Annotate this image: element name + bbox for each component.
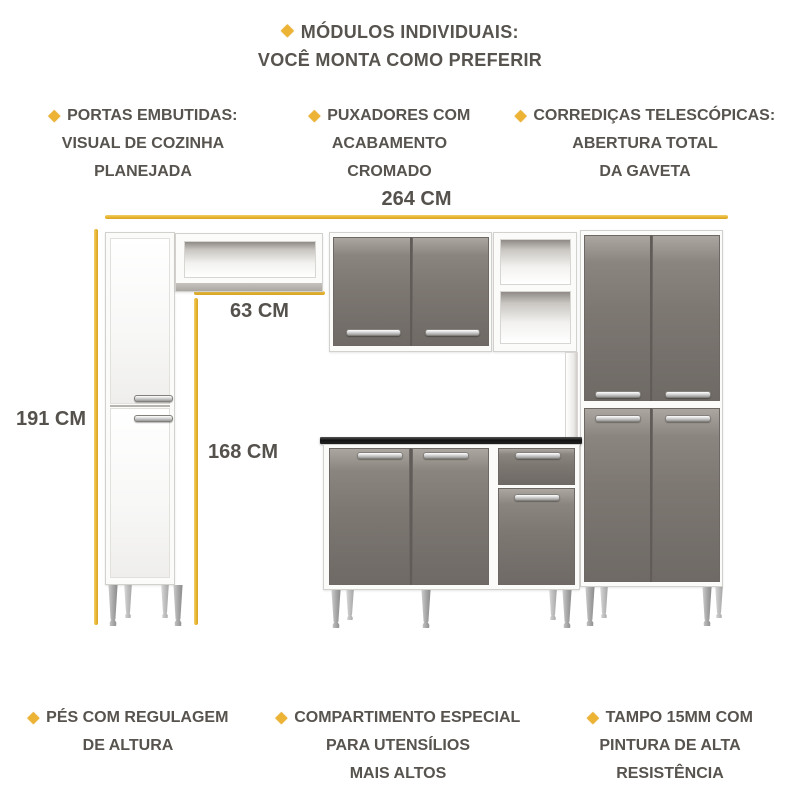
base-cabinet-drawer-handle: [515, 452, 561, 459]
dimension-label-niche-width: 63 CM: [194, 300, 325, 323]
base-cabinet-leg-front-middle: [420, 590, 432, 628]
feature-corredicas-telescopicas: ◆ CORREDIÇAS TELESCÓPICAS: ABERTURA TOTA…: [498, 102, 792, 186]
pantry-leg-back-left: [123, 585, 133, 618]
open-shelf-bottom-compartment: [500, 291, 571, 344]
feature-line: MAIS ALTOS: [256, 760, 540, 788]
right-cabinet-leg-back-right: [714, 587, 724, 618]
right-cabinet-bottom-right-door: [652, 408, 720, 582]
right-cabinet-bottom-right-handle: [665, 415, 711, 422]
niche-opening: [184, 241, 316, 278]
wall-cabinet-right-handle: [425, 329, 480, 336]
right-cabinet-leg-back-left: [599, 587, 609, 618]
page-title: ◆ MÓDULOS INDIVIDUAIS: VOCÊ MONTA COMO P…: [0, 18, 800, 74]
dimension-line-total-height: [94, 229, 98, 625]
base-cabinet-middle-handle: [423, 452, 469, 459]
feature-line: CROMADO: [272, 158, 507, 186]
pantry-lower-door-handle: [134, 415, 173, 422]
open-shelf-unit: [493, 232, 577, 352]
pantry-upper-door-handle: [134, 395, 173, 402]
diamond-icon: ◆: [309, 108, 321, 123]
diamond-icon: ◆: [49, 108, 61, 123]
base-cabinet-leg-front-right: [561, 590, 573, 628]
feature-line: PLANEJADA: [18, 158, 268, 186]
base-cabinet-leg-back-right: [548, 590, 558, 620]
dimension-label-total-width: 264 CM: [105, 188, 728, 211]
side-support-panel: [565, 352, 578, 438]
wall-cabinet-left-handle: [346, 329, 401, 336]
feature-line: DE ALTURA: [0, 732, 256, 760]
dimension-label-inner-height: 168 CM: [208, 441, 318, 464]
base-cabinet-leg-back-left: [345, 590, 355, 620]
feature-line: DA GAVETA: [498, 158, 792, 186]
title-line-1: ◆ MÓDULOS INDIVIDUAIS:: [0, 18, 800, 46]
tall-right-cabinet: [580, 230, 723, 587]
right-cabinet-top-seam: [650, 235, 652, 401]
base-cabinet: [323, 444, 580, 590]
pantry-leg-back-right: [160, 585, 170, 618]
right-cabinet-bottom-left-handle: [595, 415, 641, 422]
product-infographic: ◆ MÓDULOS INDIVIDUAIS: VOCÊ MONTA COMO P…: [0, 0, 800, 800]
right-cabinet-leg-front-left: [584, 587, 596, 626]
pantry-leg-front-left: [107, 585, 119, 626]
wall-cabinet: [329, 232, 492, 352]
pantry-door-seam: [110, 405, 170, 407]
feature-compartimento-especial: ◆ COMPARTIMENTO ESPECIAL PARA UTENSÍLIOS…: [256, 704, 540, 788]
feature-line: TAMPO 15MM COM: [606, 704, 753, 732]
right-cabinet-top-left-handle: [595, 391, 641, 398]
right-cabinet-top-left-door: [584, 235, 651, 401]
feature-line: PORTAS EMBUTIDAS:: [67, 102, 237, 130]
feature-line: CORREDIÇAS TELESCÓPICAS:: [533, 102, 775, 130]
feature-pes-regulagem: ◆ PÉS COM REGULAGEM DE ALTURA: [0, 704, 256, 760]
base-cabinet-left-handle: [357, 452, 403, 459]
upper-open-niche: [175, 233, 323, 292]
right-cabinet-top-right-door: [652, 235, 720, 401]
pantry-leg-front-right: [172, 585, 184, 626]
dimension-line-inner-height: [194, 298, 198, 625]
base-cabinet-right-door-handle: [514, 494, 560, 501]
base-cabinet-middle-door: [412, 448, 489, 585]
countertop: [320, 437, 582, 444]
diamond-icon: ◆: [281, 23, 294, 39]
right-cabinet-leg-front-right: [701, 587, 713, 626]
right-cabinet-top-right-handle: [665, 391, 711, 398]
tall-pantry-cabinet: [105, 232, 175, 585]
dimension-label-total-height: 191 CM: [10, 408, 86, 431]
feature-line: PARA UTENSÍLIOS: [256, 732, 540, 760]
title-text-2: VOCÊ MONTA COMO PREFERIR: [0, 46, 800, 74]
right-cabinet-bottom-left-door: [584, 408, 651, 582]
diamond-icon: ◆: [276, 710, 288, 725]
feature-line: PÉS COM REGULAGEM: [46, 704, 228, 732]
open-shelf-top-compartment: [500, 239, 571, 285]
title-text-1: MÓDULOS INDIVIDUAIS:: [301, 18, 519, 46]
pantry-upper-door: [110, 238, 170, 404]
feature-line: ABERTURA TOTAL: [498, 130, 792, 158]
base-cabinet-right-door: [498, 488, 575, 585]
feature-tampo-15mm: ◆ TAMPO 15MM COM PINTURA DE ALTA RESISTÊ…: [545, 704, 795, 788]
right-cabinet-bottom-seam: [650, 408, 652, 582]
feature-line: ACABAMENTO: [272, 130, 507, 158]
feature-line: VISUAL DE COZINHA: [18, 130, 268, 158]
base-cabinet-leg-front-left: [330, 590, 342, 628]
base-cabinet-left-door: [329, 448, 410, 585]
diamond-icon: ◆: [587, 710, 599, 725]
wall-cabinet-door-seam: [410, 237, 412, 346]
base-cabinet-door-seam: [410, 448, 412, 585]
diamond-icon: ◆: [28, 710, 40, 725]
feature-portas-embutidas: ◆ PORTAS EMBUTIDAS: VISUAL DE COZINHA PL…: [18, 102, 268, 186]
feature-line: PUXADORES COM: [327, 102, 470, 130]
niche-bottom-panel: [176, 283, 322, 291]
feature-line: RESISTÊNCIA: [545, 760, 795, 788]
pantry-lower-door: [110, 408, 170, 578]
feature-line: PINTURA DE ALTA: [545, 732, 795, 760]
feature-line: COMPARTIMENTO ESPECIAL: [294, 704, 520, 732]
diamond-icon: ◆: [515, 108, 527, 123]
dimension-line-total-width: [105, 215, 728, 219]
feature-puxadores-cromados: ◆ PUXADORES COM ACABAMENTO CROMADO: [272, 102, 507, 186]
